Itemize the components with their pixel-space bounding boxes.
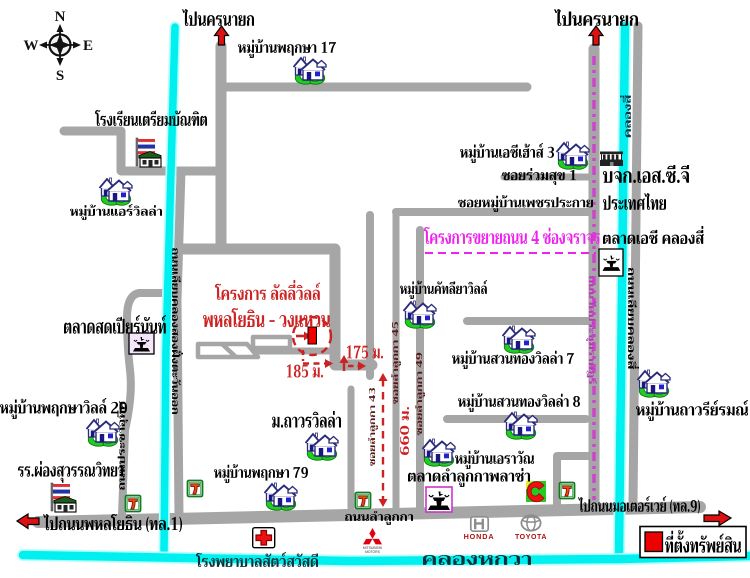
svg-text:TOYOTA: TOYOTA <box>515 534 547 541</box>
svg-text:S: S <box>56 68 64 84</box>
svg-text:N: N <box>55 9 66 25</box>
svg-text:E: E <box>83 38 93 54</box>
svg-text:W: W <box>24 38 39 54</box>
svg-text:MOTORS: MOTORS <box>365 550 381 554</box>
svg-text:HONDA: HONDA <box>464 532 495 541</box>
